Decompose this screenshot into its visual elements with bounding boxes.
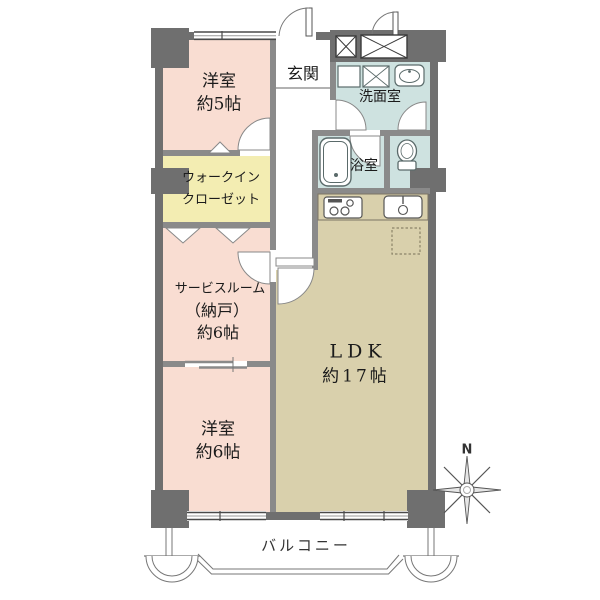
compass-icon — [433, 456, 501, 524]
floor-plan: 洋室 約5帖 玄関 洗面室 ウォークイン クローゼット 浴室 サービスルーム （… — [0, 0, 600, 600]
bathtub-icon — [320, 138, 351, 186]
label-western6-size: 約6帖 — [196, 445, 241, 462]
vanity-sink-icon — [395, 65, 424, 86]
floorplan-graphics — [0, 0, 600, 600]
label-service-size: 約6帖 — [197, 325, 239, 341]
toilet-icon — [398, 140, 417, 170]
label-western6-name: 洋室 — [201, 422, 235, 439]
window-bottom-right — [320, 511, 408, 521]
entrance-door-arc — [279, 8, 312, 36]
laundry-pan-icon — [363, 66, 389, 87]
label-washroom: 洗面室 — [359, 90, 401, 104]
sliding-door-marks — [185, 357, 247, 372]
label-western5-name: 洋室 — [202, 74, 236, 91]
label-balcony: バルコニー — [261, 539, 351, 554]
label-ldk-name: LDK — [329, 343, 386, 362]
meter-box-icon — [336, 35, 407, 58]
label-service-name: サービスルーム — [175, 283, 266, 296]
label-entrance: 玄関 — [287, 66, 319, 82]
service-door-arc — [238, 252, 270, 284]
label-service-sub: （納戸） — [185, 303, 249, 319]
label-ldk-size: 約17帖 — [322, 369, 390, 386]
stove-icon — [324, 197, 362, 218]
washer-space-icon — [338, 66, 360, 87]
ldk-door-arc — [276, 258, 314, 304]
label-wic-line2: クローゼット — [182, 194, 260, 207]
label-compass-north: N — [462, 444, 473, 457]
kitchen-sink-icon — [384, 196, 422, 218]
label-wic-line1: ウォークイン — [182, 172, 260, 185]
meterbox-door-arc — [372, 12, 398, 36]
toilet-door-arc — [398, 102, 426, 130]
refrigerator-space — [392, 228, 420, 254]
window-bottom-left — [187, 511, 266, 521]
western5-door-arc — [238, 118, 270, 150]
label-bathroom: 浴室 — [350, 159, 378, 173]
window-top — [194, 31, 276, 40]
label-western5-size: 約5帖 — [197, 97, 242, 114]
